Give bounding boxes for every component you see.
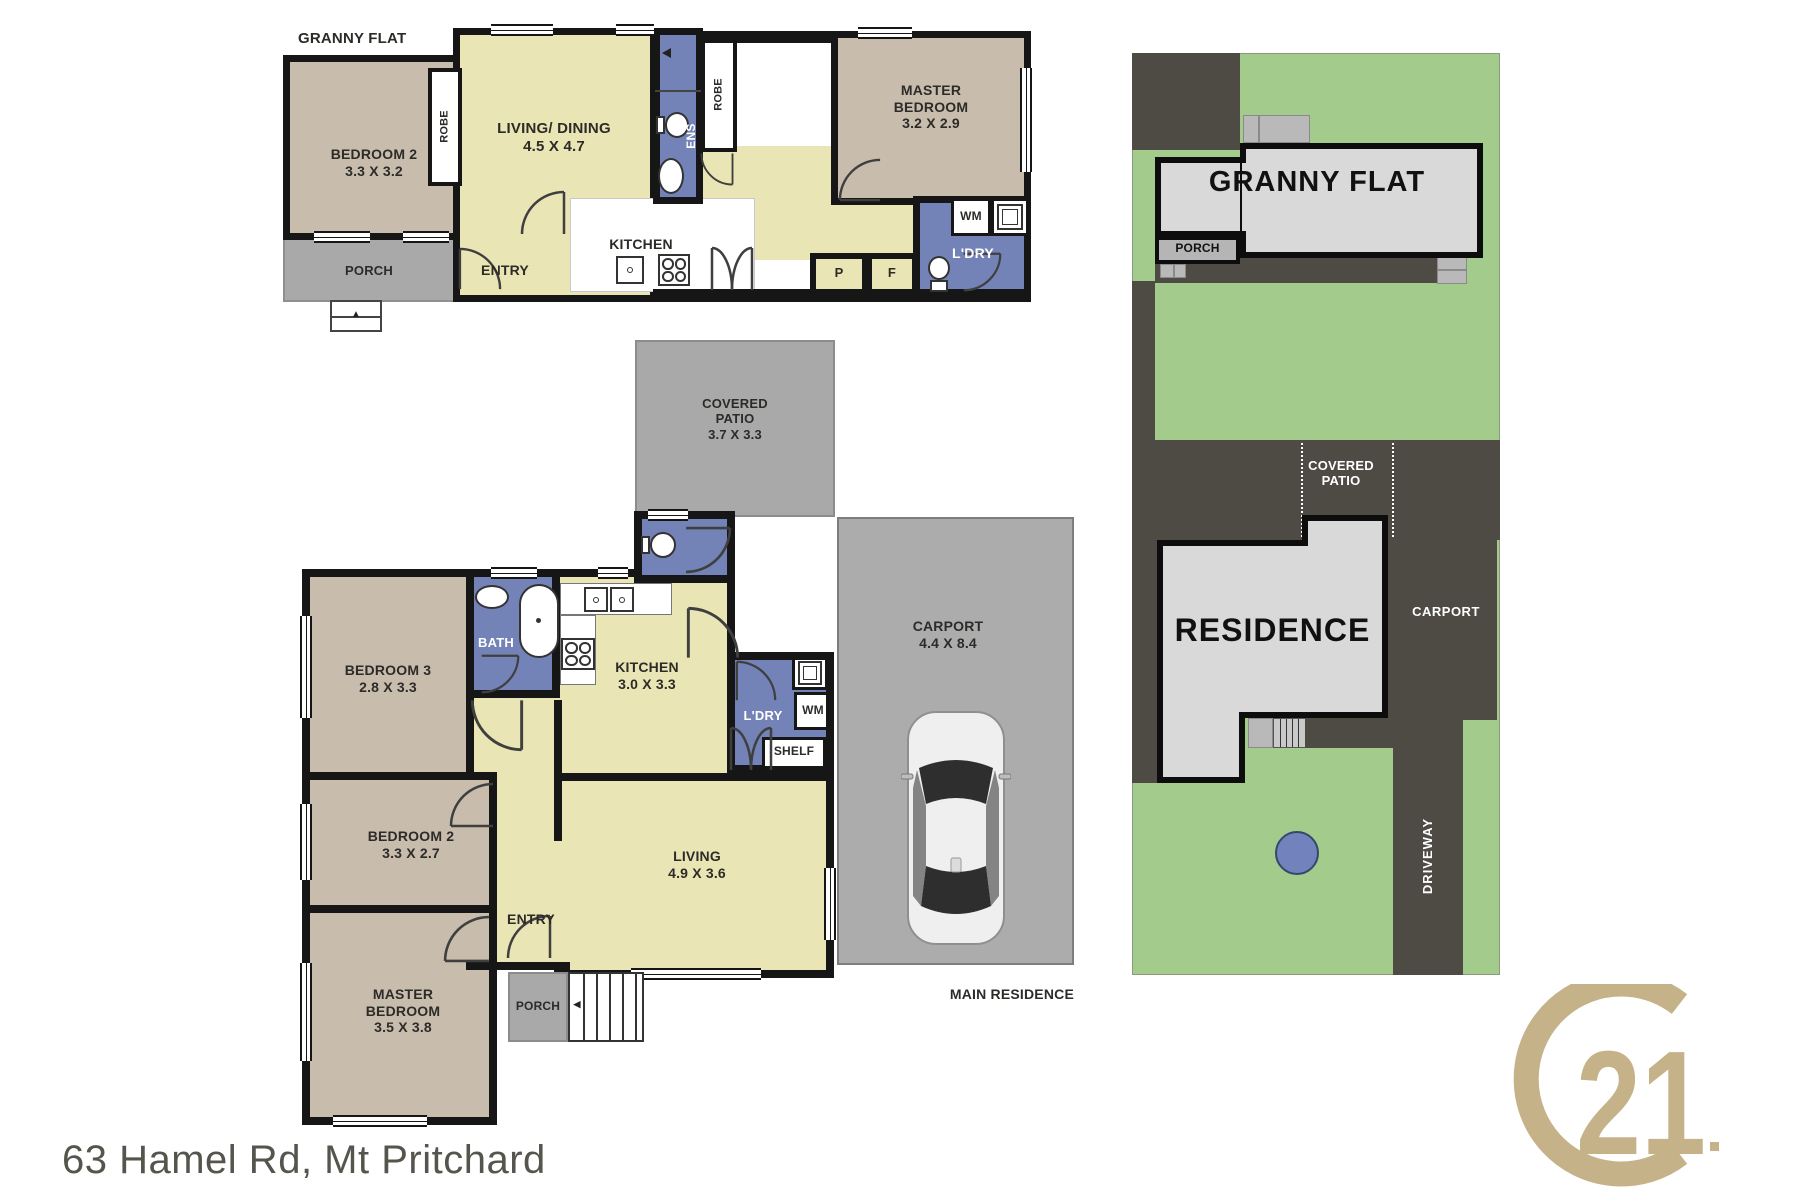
room-name: MASTER xyxy=(851,82,1011,99)
room-dims: 3.3 X 3.2 xyxy=(294,163,454,180)
window xyxy=(824,868,836,940)
room-name: COVERED xyxy=(1281,458,1401,473)
mr-wm-label: WM xyxy=(794,703,832,717)
site-porch-steps xyxy=(1160,264,1186,278)
mr-bath-label: BATH xyxy=(464,635,528,650)
room-name: BEDROOM 2 xyxy=(331,828,491,845)
window xyxy=(300,804,312,880)
room-name: BEDROOM 2 xyxy=(294,146,454,163)
site-granny-flat-label: GRANNY FLAT xyxy=(1197,165,1437,199)
room-name: CARPORT xyxy=(868,618,1028,635)
logo-number: 21 xyxy=(1576,1021,1706,1186)
gf-hall-strip xyxy=(753,198,920,260)
room-dims: 3.0 X 3.3 xyxy=(577,676,717,693)
door-arc-icon xyxy=(838,158,882,202)
site-covered-patio-label: COVERED PATIO xyxy=(1281,458,1401,489)
gf-porch-label: PORCH xyxy=(329,263,409,278)
room-dims: 3.7 X 3.3 xyxy=(645,427,825,442)
mr-bedroom2-label: BEDROOM 2 3.3 X 2.7 xyxy=(331,828,491,861)
mr-entry-label: ENTRY xyxy=(491,911,571,928)
gf-bedroom2-label: BEDROOM 2 3.3 X 3.2 xyxy=(294,146,454,179)
room-name: LIVING/ DINING xyxy=(474,120,634,138)
gf-living-label: LIVING/ DINING 4.5 X 4.7 xyxy=(474,120,634,155)
property-address: 63 Hamel Rd, Mt Pritchard xyxy=(62,1138,546,1183)
washing-machine-icon xyxy=(798,661,822,685)
site-carport-label: CARPORT xyxy=(1396,604,1496,619)
room-name: PATIO xyxy=(645,411,825,426)
window xyxy=(300,963,312,1061)
room-name: LIVING xyxy=(617,848,777,865)
sink-icon xyxy=(616,256,644,284)
site-residence-label: RESIDENCE xyxy=(1162,612,1383,650)
gf-robe2-label: ROBE xyxy=(713,64,726,124)
window xyxy=(616,24,654,36)
mr-main-residence-label: MAIN RESIDENCE xyxy=(858,986,1074,1003)
divider xyxy=(655,90,701,92)
stove-icon xyxy=(658,254,690,286)
gf-ens-label: ENS xyxy=(684,106,698,166)
patch xyxy=(1308,536,1382,546)
door-arc-icon xyxy=(735,660,777,702)
shower-head-icon xyxy=(662,48,671,58)
gf-master-label: MASTER BEDROOM 3.2 X 2.9 xyxy=(851,82,1011,132)
granny-flat-title: GRANNY FLAT xyxy=(298,30,406,48)
gf-pantry-label: P xyxy=(810,265,868,280)
site-paving xyxy=(1132,540,1157,783)
site-path xyxy=(1437,254,1467,284)
mr-bedroom3-label: BEDROOM 3 2.8 X 3.3 xyxy=(308,662,468,695)
window xyxy=(333,1115,427,1127)
mr-carport-label: CARPORT 4.4 X 8.4 xyxy=(868,618,1028,651)
gf-fridge-label: F xyxy=(866,265,918,280)
room-name: COVERED xyxy=(645,396,825,411)
site-paving xyxy=(1132,53,1240,150)
window xyxy=(491,24,553,36)
car-top-view xyxy=(901,708,1011,948)
room-name: BEDROOM xyxy=(851,99,1011,116)
gf-robe1-label: ROBE xyxy=(439,96,452,156)
window xyxy=(648,509,688,521)
door-arc-icon xyxy=(686,606,740,660)
door-arc-icon xyxy=(480,654,520,694)
toilet-icon xyxy=(926,256,952,294)
room-dims: 2.8 X 3.3 xyxy=(308,679,468,696)
room-dims: 3.2 X 2.9 xyxy=(851,115,1011,132)
gf-entry-label: ENTRY xyxy=(465,262,545,279)
basin-icon xyxy=(658,158,684,194)
gf-kitchen-label: KITCHEN xyxy=(581,236,701,253)
site-stairs xyxy=(1273,718,1307,748)
mr-covered-patio-label: COVERED PATIO 3.7 X 3.3 xyxy=(645,396,825,442)
site-path xyxy=(1243,115,1310,143)
left-arrow-icon: ◀ xyxy=(570,999,584,1010)
door-arc-icon xyxy=(449,782,495,828)
room-dims: 4.4 X 8.4 xyxy=(868,635,1028,652)
double-door-icon xyxy=(710,246,754,292)
basin-icon xyxy=(475,585,509,609)
wall xyxy=(634,575,735,583)
site-carport-area xyxy=(1388,540,1497,720)
tree-circle-icon xyxy=(1275,831,1319,875)
logo-trademark-dot xyxy=(1710,1142,1719,1151)
door-arc-icon xyxy=(443,915,491,963)
site-driveway-label: DRIVEWAY xyxy=(1420,801,1436,911)
window xyxy=(403,231,449,243)
window xyxy=(491,567,537,579)
mr-porch-label: PORCH xyxy=(508,999,568,1013)
window xyxy=(1020,68,1032,172)
wall xyxy=(554,773,834,781)
door-arc-icon xyxy=(684,526,732,574)
door-arc-icon xyxy=(470,698,524,752)
room-name: BEDROOM xyxy=(323,1003,483,1020)
mr-shelf-label: SHELF xyxy=(762,744,826,758)
room-name: KITCHEN xyxy=(577,659,717,676)
toilet-icon xyxy=(641,532,679,558)
room-dims: 4.5 X 4.7 xyxy=(474,138,634,156)
mr-ldry-label: L'DRY xyxy=(723,708,803,723)
site-porch-label: PORCH xyxy=(1155,241,1240,255)
up-arrow-icon: ▲ xyxy=(330,309,382,321)
century21-logo: 21 xyxy=(1496,984,1795,1204)
patch xyxy=(1163,712,1239,724)
window xyxy=(314,231,370,243)
room-dims: 3.3 X 2.7 xyxy=(331,845,491,862)
wall xyxy=(302,905,497,913)
site-path-dark xyxy=(1305,718,1393,748)
mr-living-label: LIVING 4.9 X 3.6 xyxy=(617,848,777,881)
room-name: BEDROOM 3 xyxy=(308,662,468,679)
mr-master-label: MASTER BEDROOM 3.5 X 3.8 xyxy=(323,986,483,1036)
room-name: MASTER xyxy=(323,986,483,1003)
site-granny-flat-building xyxy=(1240,143,1483,258)
mr-kitchen-label: KITCHEN 3.0 X 3.3 xyxy=(577,659,717,692)
gf-ldry-label: L'DRY xyxy=(933,245,1013,262)
wall xyxy=(302,772,497,780)
wall xyxy=(466,962,570,970)
washing-machine-icon xyxy=(997,204,1023,230)
wall xyxy=(727,652,834,660)
room-name: PATIO xyxy=(1281,473,1401,488)
site-stairs-landing xyxy=(1248,718,1273,748)
door-arc-icon xyxy=(700,152,734,186)
gf-wm-label: WM xyxy=(951,209,991,223)
room-dims: 3.5 X 3.8 xyxy=(323,1019,483,1036)
window xyxy=(598,567,628,579)
wall xyxy=(698,31,838,43)
window xyxy=(631,968,761,980)
room-dims: 4.9 X 3.6 xyxy=(617,865,777,882)
wall xyxy=(554,700,562,841)
sink-icon xyxy=(584,587,608,612)
door-arc-icon xyxy=(520,190,566,236)
floorplan-page: GRANNY FLAT ▲ xyxy=(0,0,1795,1204)
sink-icon xyxy=(610,587,634,612)
window xyxy=(858,27,912,39)
